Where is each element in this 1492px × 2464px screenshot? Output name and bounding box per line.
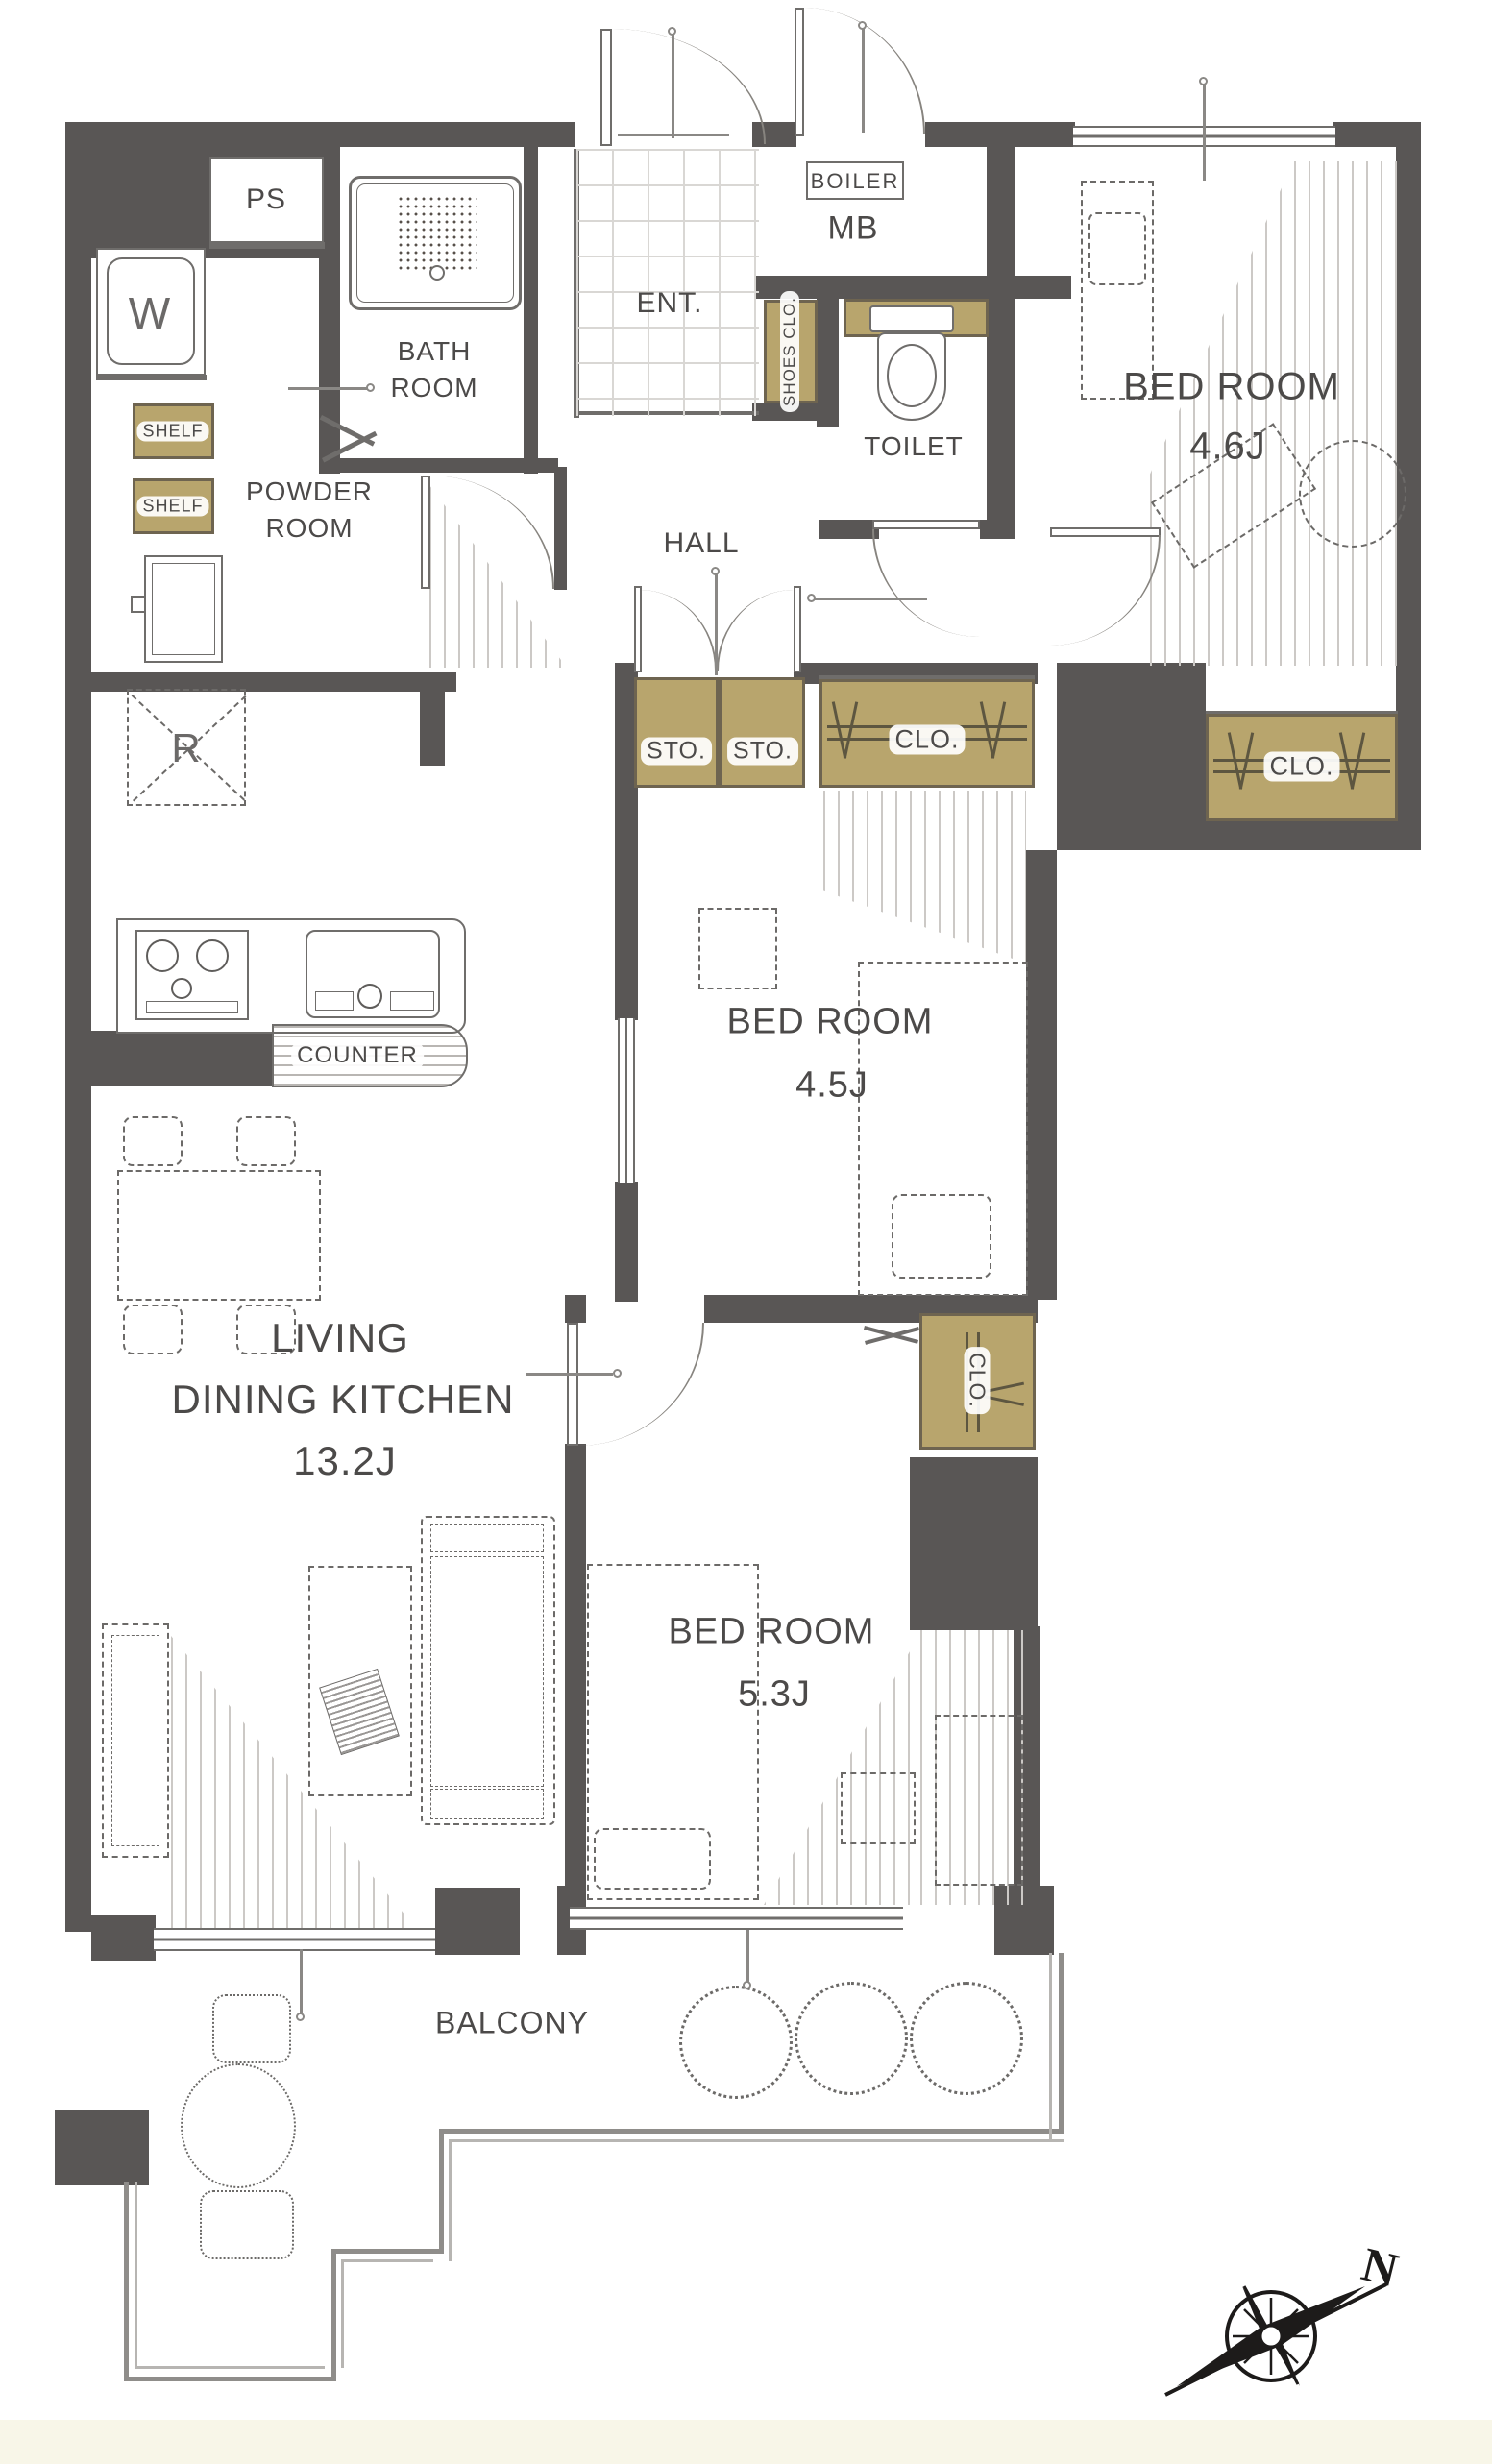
- centerline: [1203, 85, 1206, 181]
- wall: [321, 458, 558, 473]
- shelf-label: SHELF: [136, 497, 208, 517]
- centerline: [300, 1949, 303, 2014]
- entrance-door-swing: [612, 29, 766, 144]
- centerline-dot: [668, 27, 676, 36]
- sofa-seat: [430, 1556, 544, 1787]
- powder-door-swing: [430, 476, 554, 589]
- centerline: [812, 598, 927, 600]
- wall: [91, 1915, 156, 1961]
- bedroom-4-6-size: 4.6J: [1189, 426, 1266, 469]
- bedroom-4-5-label: BED ROOM: [727, 1002, 934, 1043]
- bedroom-5-3-door-leaf: [567, 1323, 578, 1446]
- hall-label: HALL: [663, 527, 739, 560]
- storage-sto-2: [719, 677, 805, 788]
- wall: [756, 276, 1071, 299]
- refrigerator-label: R: [171, 725, 201, 771]
- centerline: [715, 574, 718, 675]
- wall: [554, 467, 567, 590]
- centerline: [672, 35, 674, 138]
- living-size: 13.2J: [293, 1438, 397, 1484]
- closet-label: CLO.: [965, 1347, 991, 1414]
- toilet-bowl-inner: [887, 344, 937, 407]
- wall: [91, 1031, 272, 1086]
- balcony-rail: [124, 2377, 335, 2381]
- wall: [910, 1457, 1038, 1630]
- centerline-dot: [296, 2013, 305, 2021]
- pillow-5-3: [594, 1828, 711, 1890]
- living-label-line1: LIVING: [271, 1315, 409, 1361]
- window-bedroom-5-3: [570, 1907, 903, 1930]
- closet-label: CLO.: [889, 725, 965, 755]
- living-label-line2: DINING KITCHEN: [171, 1377, 514, 1423]
- balcony-rail: [331, 2249, 336, 2381]
- bathroom-label: BATH: [398, 336, 472, 367]
- storage-sto-1: [634, 677, 719, 788]
- pillow-4-5: [892, 1194, 991, 1279]
- chest-5-3: [935, 1715, 1023, 1886]
- storage-door-left-swing: [640, 590, 717, 671]
- centerline-dot: [711, 567, 720, 575]
- wall: [65, 122, 91, 1932]
- wall: [565, 1295, 586, 1323]
- balcony-rail: [331, 2249, 443, 2254]
- floor-plan: PS W BATH ROOM POWDER ROOM SHELF SHELF E…: [0, 0, 1492, 2464]
- wall: [1057, 821, 1421, 850]
- wall: [420, 689, 445, 766]
- bedroom-4-6-floor-hatch: [1150, 161, 1398, 666]
- bath-mat-dots: [397, 195, 477, 270]
- balcony-label: BALCONY: [435, 2006, 589, 2041]
- dining-chair: [123, 1116, 183, 1166]
- balcony-rail-inner: [449, 2139, 452, 2261]
- bedroom-5-3-door-swing: [578, 1323, 704, 1446]
- closet-label: CLO.: [1263, 752, 1339, 782]
- centerline-dot: [858, 21, 867, 30]
- planter-icon: [910, 1982, 1023, 2095]
- meter-box-label: MB: [828, 210, 879, 248]
- wall: [987, 134, 1015, 533]
- centerline: [526, 1373, 613, 1376]
- toilet-label: TOILET: [864, 431, 964, 462]
- bedroom-4-5-size: 4.5J: [795, 1065, 868, 1107]
- sink-drainer: [315, 991, 354, 1011]
- powder-door-leaf: [421, 476, 430, 589]
- stove-burner: [146, 939, 179, 972]
- powder-room-label: POWDER: [246, 476, 373, 507]
- boiler-label: BOILER: [811, 169, 900, 194]
- balcony-rail: [124, 2182, 129, 2381]
- centerline-dot: [743, 1981, 751, 1989]
- centerline-dot: [366, 383, 375, 392]
- chair-4-6: [1299, 440, 1406, 548]
- powder-room-label: ROOM: [265, 513, 353, 544]
- centerline: [288, 387, 370, 390]
- centerline: [862, 29, 865, 133]
- storage-label: STO.: [727, 738, 798, 766]
- entrance-door-leaf: [600, 29, 612, 146]
- partition: [209, 242, 325, 249]
- balcony-rail-inner: [341, 2259, 433, 2262]
- toilet-door-leaf: [872, 520, 980, 529]
- powder-vanity-inner: [152, 563, 215, 655]
- wall: [819, 520, 879, 539]
- sofa-arm: [430, 1524, 544, 1552]
- faucet: [357, 984, 382, 1009]
- wall: [524, 145, 538, 474]
- window-partition-living-bedroom: [618, 1018, 635, 1183]
- shoes-closet-label: SHOES CLO.: [780, 291, 799, 412]
- tv-board-inner: [111, 1635, 159, 1846]
- wall: [565, 1444, 586, 1907]
- balcony-rail: [1059, 1953, 1064, 2134]
- wall: [817, 297, 839, 427]
- vanity-handle: [131, 596, 146, 613]
- bathroom-label: ROOM: [390, 373, 477, 403]
- centerline-dot: [1199, 77, 1208, 85]
- balcony-table: [181, 2063, 296, 2188]
- planter-icon: [679, 1986, 793, 2099]
- sink-drainer: [390, 991, 434, 1011]
- balcony-rail-inner: [341, 2259, 344, 2368]
- bedroom-4-6-label: BED ROOM: [1123, 366, 1340, 409]
- side-table-4-5: [698, 908, 777, 989]
- wall: [980, 520, 1015, 539]
- bedroom-4-6-door-swing: [1050, 535, 1161, 646]
- balcony-chair: [200, 2190, 294, 2259]
- toilet-tank: [869, 305, 954, 332]
- dining-chair: [123, 1305, 183, 1354]
- wall: [435, 1888, 520, 1955]
- balcony-rail: [439, 2129, 444, 2254]
- bedroom-4-5-floor-hatch: [823, 791, 1026, 964]
- storage-door-right-leaf: [794, 586, 801, 672]
- centerline: [618, 134, 729, 136]
- counter-label: COUNTER: [291, 1042, 424, 1069]
- bedroom-5-3-label: BED ROOM: [669, 1612, 875, 1653]
- toilet-door-swing: [872, 529, 980, 637]
- planter-icon: [795, 1982, 908, 2095]
- shelf-label: SHELF: [136, 422, 208, 442]
- balcony-chair: [212, 1994, 291, 2063]
- entrance-label: ENT.: [636, 287, 702, 320]
- balcony-rail-inner: [1049, 1953, 1052, 2141]
- window-living: [154, 1928, 435, 1951]
- centerline: [746, 1930, 749, 1983]
- wall: [615, 1182, 638, 1302]
- pillow-4-6: [1088, 212, 1146, 285]
- centerline-dot: [807, 594, 816, 602]
- stove-grill: [146, 1001, 238, 1013]
- pipe-space-label: PS: [246, 183, 286, 216]
- balcony-rail: [439, 2129, 1064, 2134]
- centerline-dot: [613, 1369, 622, 1378]
- balcony-rail-inner: [449, 2139, 1064, 2142]
- stove-burner: [196, 939, 229, 972]
- washer-label: W: [129, 287, 171, 339]
- bath-drain: [429, 265, 445, 281]
- dining-table: [117, 1170, 321, 1301]
- sofa-arm: [430, 1789, 544, 1819]
- mb-door-leaf: [795, 8, 804, 136]
- wall: [1026, 850, 1057, 1300]
- wall: [55, 2110, 149, 2185]
- stove-burner: [171, 978, 192, 999]
- balcony-rail-inner: [135, 2182, 137, 2368]
- desk-5-3: [841, 1772, 916, 1844]
- page-mat-strip: [0, 2420, 1492, 2464]
- entrance-tile-floor: [576, 149, 759, 416]
- balcony-rail-inner: [135, 2366, 325, 2369]
- dining-chair: [236, 1116, 296, 1166]
- storage-door-right-swing: [717, 590, 794, 671]
- bedroom-5-3-size: 5.3J: [738, 1674, 811, 1716]
- storage-label: STO.: [641, 738, 712, 766]
